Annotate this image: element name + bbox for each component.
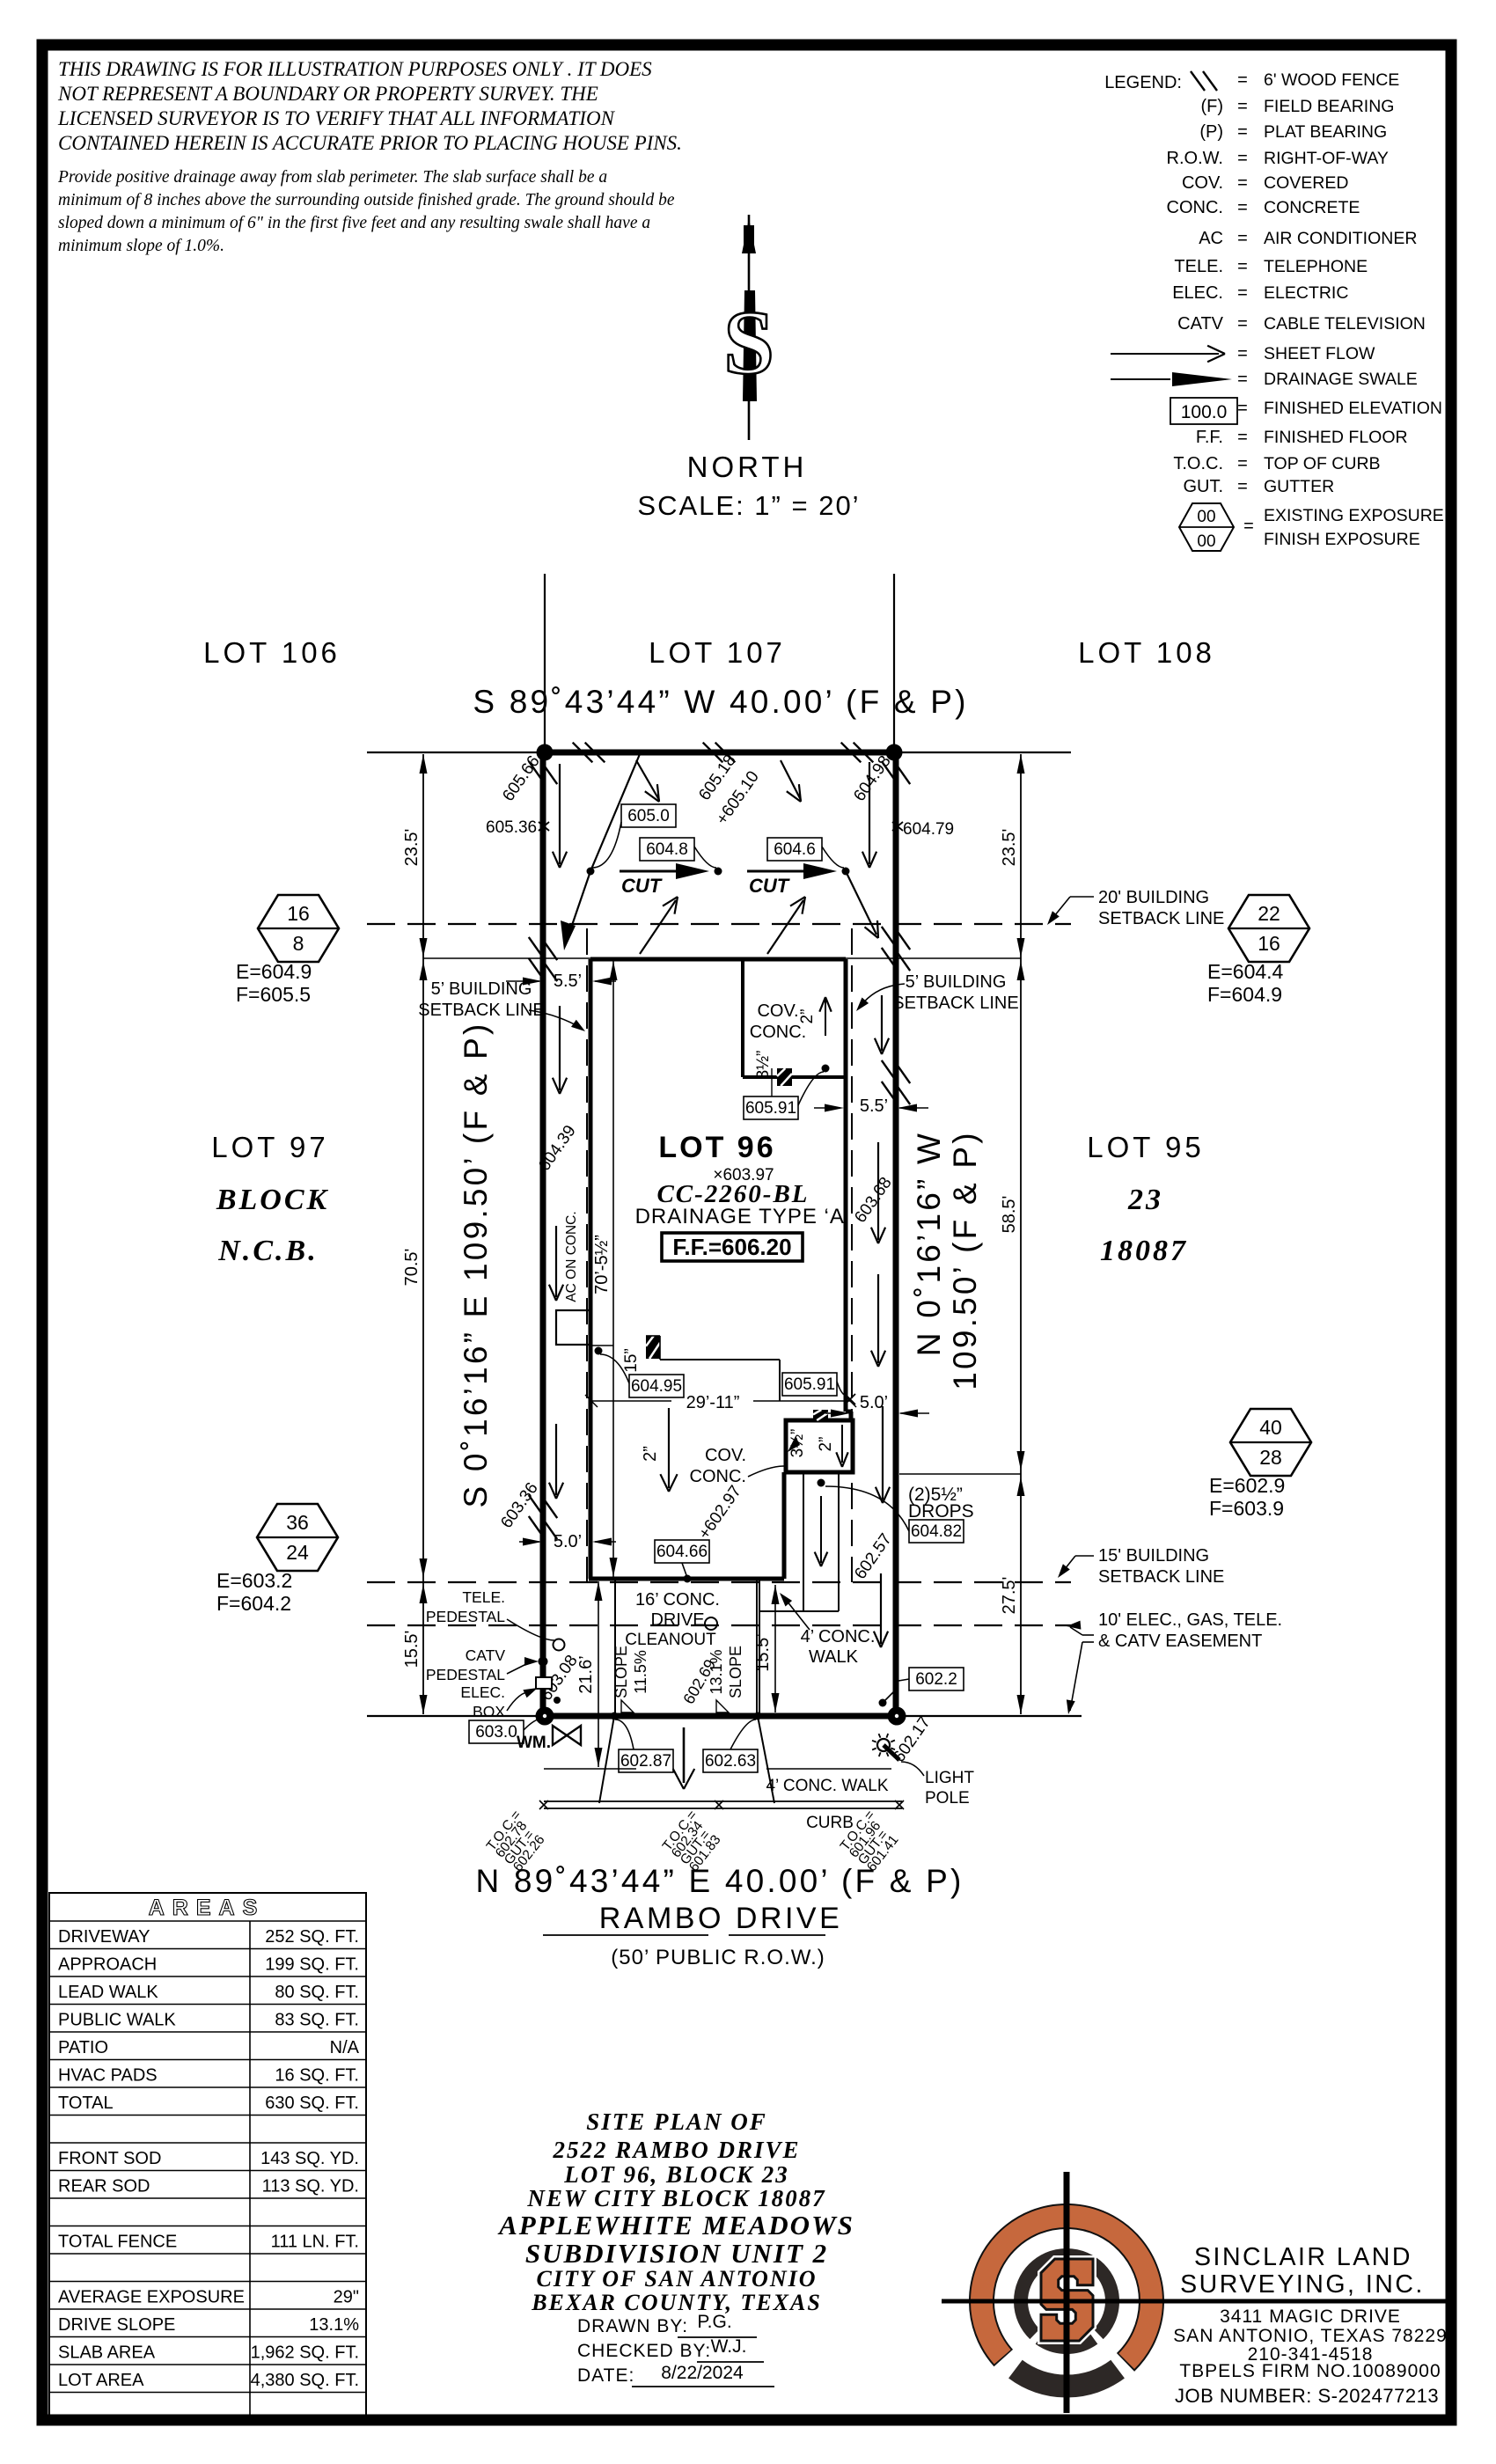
svg-text:BOX: BOX <box>473 1703 505 1720</box>
svg-text:RAMBO DRIVE: RAMBO DRIVE <box>599 1902 843 1935</box>
svg-text:CLEANOUT: CLEANOUT <box>625 1631 716 1649</box>
svg-text:E=604.4: E=604.4 <box>1207 960 1284 983</box>
svg-text:00: 00 <box>1197 508 1215 526</box>
svg-text:27.5': 27.5' <box>1000 1577 1019 1615</box>
svg-text:S: S <box>723 292 774 393</box>
svg-text:AVERAGE EXPOSURE: AVERAGE EXPOSURE <box>58 2288 245 2307</box>
svg-text:=: = <box>1243 517 1254 536</box>
svg-text:LEGEND:: LEGEND: <box>1104 73 1182 92</box>
svg-text:F.F.: F.F. <box>1196 428 1223 447</box>
svg-text:DROPS: DROPS <box>908 1501 974 1522</box>
svg-text:5’ BUILDING: 5’ BUILDING <box>906 972 1007 992</box>
svg-text:604.95: 604.95 <box>631 1377 682 1396</box>
svg-text:SLOPE: SLOPE <box>612 1646 630 1698</box>
svg-text:ELEC.: ELEC. <box>460 1683 505 1701</box>
svg-text:604.82: 604.82 <box>911 1522 962 1541</box>
svg-text:FIELD BEARING: FIELD BEARING <box>1264 97 1394 116</box>
svg-text:=: = <box>1237 344 1248 363</box>
svg-text:16 SQ. FT.: 16 SQ. FT. <box>275 2066 359 2086</box>
svg-text:LOT 97: LOT 97 <box>211 1131 328 1163</box>
svg-text:(50’ PUBLIC R.O.W.): (50’ PUBLIC R.O.W.) <box>611 1946 825 1969</box>
svg-text:COV.: COV. <box>1182 173 1223 193</box>
svg-text:3½”: 3½” <box>754 1051 773 1080</box>
svg-text:SLAB AREA: SLAB AREA <box>58 2343 156 2363</box>
svg-text:109.50’ (F & P): 109.50’ (F & P) <box>947 1130 983 1390</box>
svg-text:CONC.: CONC. <box>1167 198 1223 217</box>
svg-text:CONC.: CONC. <box>750 1023 806 1042</box>
svg-text:DRIVE SLOPE: DRIVE SLOPE <box>58 2315 175 2335</box>
svg-text:E=604.9: E=604.9 <box>236 960 312 983</box>
svg-text:EXISTING EXPOSURE: EXISTING EXPOSURE <box>1264 506 1444 525</box>
svg-text:ELECTRIC: ELECTRIC <box>1264 283 1348 303</box>
svg-text:15.5’: 15.5’ <box>753 1633 773 1671</box>
svg-text:Provide positive drainage away: Provide positive drainage away from slab… <box>57 168 607 187</box>
svg-text:AIR CONDITIONER: AIR CONDITIONER <box>1264 229 1417 248</box>
svg-text:604.8: 604.8 <box>646 840 688 859</box>
svg-text:APPROACH: APPROACH <box>58 1955 157 1975</box>
svg-text:RIGHT-OF-WAY: RIGHT-OF-WAY <box>1264 149 1389 168</box>
svg-text:LOT 96: LOT 96 <box>658 1131 775 1164</box>
svg-text:SITE PLAN OF: SITE PLAN OF <box>586 2108 767 2135</box>
svg-text:CUT: CUT <box>621 875 663 897</box>
svg-text:S 0˚16’16” E 109.50’ (F & P): S 0˚16’16” E 109.50’ (F & P) <box>458 1021 494 1507</box>
svg-text:minimum of 8 inches above the: minimum of 8 inches above the surroundin… <box>58 191 675 209</box>
svg-text:143 SQ. YD.: 143 SQ. YD. <box>260 2149 359 2168</box>
svg-text:SUBDIVISION UNIT 2: SUBDIVISION UNIT 2 <box>525 2238 828 2269</box>
svg-text:5.5’: 5.5’ <box>860 1096 888 1116</box>
svg-text:LOT 106: LOT 106 <box>203 636 341 669</box>
svg-text:29’-11”: 29’-11” <box>686 1393 740 1412</box>
svg-text:LOT 96, BLOCK 23: LOT 96, BLOCK 23 <box>563 2161 789 2188</box>
svg-text:8: 8 <box>293 932 304 955</box>
svg-text:LICENSED SURVEYOR IS TO VERIFY: LICENSED SURVEYOR IS TO VERIFY THAT ALL … <box>57 107 616 129</box>
svg-text:JOB NUMBER: S-202477213: JOB NUMBER: S-202477213 <box>1175 2385 1439 2407</box>
svg-text:FINISH EXPOSURE: FINISH EXPOSURE <box>1264 530 1420 549</box>
svg-text:11.5%: 11.5% <box>632 1650 649 1694</box>
svg-text:DRAWN BY:: DRAWN BY: <box>577 2316 688 2336</box>
svg-text:=: = <box>1237 283 1248 303</box>
svg-text:GUT.: GUT. <box>1183 477 1223 496</box>
svg-text:=: = <box>1237 198 1248 217</box>
svg-text:=: = <box>1237 314 1248 334</box>
svg-text:SAN ANTONIO, TEXAS 78229: SAN ANTONIO, TEXAS 78229 <box>1173 2326 1448 2346</box>
svg-text:70.5': 70.5' <box>402 1249 422 1287</box>
svg-text:2522 RAMBO DRIVE: 2522 RAMBO DRIVE <box>552 2137 800 2163</box>
svg-text:LOT 108: LOT 108 <box>1078 636 1215 669</box>
svg-text:4’ CONC.: 4’ CONC. <box>801 1627 876 1646</box>
svg-text:24: 24 <box>286 1541 309 1564</box>
svg-text:N/A: N/A <box>330 2038 360 2057</box>
svg-text:23.5': 23.5' <box>402 829 422 867</box>
svg-text:630 SQ. FT.: 630 SQ. FT. <box>265 2094 359 2113</box>
svg-text:F=603.9: F=603.9 <box>1209 1497 1284 1520</box>
svg-text:199 SQ. FT.: 199 SQ. FT. <box>265 1955 359 1975</box>
svg-text:SLOPE: SLOPE <box>727 1646 744 1698</box>
svg-text:605.36: 605.36 <box>486 818 537 837</box>
svg-text:PATIO: PATIO <box>58 2038 108 2057</box>
svg-text:HVAC PADS: HVAC PADS <box>58 2066 158 2086</box>
svg-text:22: 22 <box>1258 902 1280 925</box>
svg-text:CONTAINED HEREIN IS ACCURATE P: CONTAINED HEREIN IS ACCURATE PRIOR TO PL… <box>58 132 682 154</box>
svg-text:20' BUILDING: 20' BUILDING <box>1098 888 1209 907</box>
svg-text:F=604.2: F=604.2 <box>216 1592 291 1615</box>
svg-text:SINCLAIR LAND: SINCLAIR LAND <box>1194 2243 1412 2271</box>
svg-text:10' ELEC., GAS, TELE.: 10' ELEC., GAS, TELE. <box>1098 1610 1282 1630</box>
svg-text:minimum slope of 1.0%.: minimum slope of 1.0%. <box>58 237 224 255</box>
svg-text:83 SQ. FT.: 83 SQ. FT. <box>275 2011 359 2030</box>
svg-text:=: = <box>1237 428 1248 447</box>
svg-text:(P): (P) <box>1199 122 1223 142</box>
svg-text:16: 16 <box>287 902 310 925</box>
svg-text:PUBLIC WALK: PUBLIC WALK <box>58 2011 176 2030</box>
svg-text:70’-5½”: 70’-5½” <box>592 1235 612 1294</box>
svg-text:CHECKED BY:: CHECKED BY: <box>577 2341 711 2361</box>
svg-text:& CATV EASEMENT: & CATV EASEMENT <box>1098 1632 1262 1651</box>
svg-text:=: = <box>1237 173 1248 193</box>
svg-text:TELE.: TELE. <box>1174 257 1223 276</box>
svg-text:603.0: 603.0 <box>475 1723 517 1742</box>
svg-text:16’ CONC.: 16’ CONC. <box>635 1590 720 1610</box>
svg-text:=: = <box>1237 454 1248 473</box>
svg-text:=: = <box>1237 399 1248 418</box>
svg-text:F=604.9: F=604.9 <box>1207 983 1282 1006</box>
svg-text:36: 36 <box>286 1511 309 1534</box>
svg-text:THIS DRAWING IS FOR ILLUSTRATI: THIS DRAWING IS FOR ILLUSTRATION PURPOSE… <box>58 58 652 80</box>
svg-text:602.87: 602.87 <box>620 1752 671 1771</box>
svg-text:LOT 95: LOT 95 <box>1087 1131 1204 1163</box>
svg-text:113 SQ. YD.: 113 SQ. YD. <box>262 2177 359 2196</box>
svg-text:=: = <box>1237 149 1248 168</box>
svg-text:PEDESTAL: PEDESTAL <box>426 1666 505 1683</box>
svg-text:AC ON CONC.: AC ON CONC. <box>564 1211 579 1302</box>
svg-text:LOT AREA: LOT AREA <box>58 2371 144 2390</box>
svg-text:DRIVEWAY: DRIVEWAY <box>58 1927 150 1947</box>
svg-text:DRAINAGE SWALE: DRAINAGE SWALE <box>1264 370 1418 389</box>
svg-text:13.1%: 13.1% <box>309 2315 359 2335</box>
svg-text:252 SQ. FT.: 252 SQ. FT. <box>265 1927 359 1947</box>
svg-text:AC: AC <box>1199 229 1223 248</box>
svg-text:E=603.2: E=603.2 <box>216 1569 292 1592</box>
svg-text:REAR SOD: REAR SOD <box>58 2177 150 2196</box>
svg-text:18087: 18087 <box>1100 1235 1188 1267</box>
svg-text:F=605.5: F=605.5 <box>236 983 311 1006</box>
svg-text:CATV: CATV <box>466 1646 506 1664</box>
svg-text:=: = <box>1237 70 1248 90</box>
svg-text:FRONT SOD: FRONT SOD <box>58 2149 161 2168</box>
svg-text:16: 16 <box>1258 932 1280 955</box>
svg-text:28: 28 <box>1259 1446 1282 1469</box>
svg-text:15.5': 15.5' <box>402 1631 422 1668</box>
svg-text:WALK: WALK <box>809 1647 859 1667</box>
svg-text:2”: 2” <box>641 1446 660 1462</box>
svg-text:P.G.: P.G. <box>697 2312 731 2332</box>
svg-text:2”: 2” <box>798 1009 817 1024</box>
svg-text:APPLEWHITE MEADOWS: APPLEWHITE MEADOWS <box>497 2210 854 2240</box>
svg-text:CURB: CURB <box>806 1814 854 1832</box>
svg-text:605.91: 605.91 <box>745 1099 796 1118</box>
svg-text:100.0: 100.0 <box>1181 402 1228 422</box>
svg-text:LOT 107: LOT 107 <box>649 636 786 669</box>
svg-text:E=602.9: E=602.9 <box>1209 1474 1285 1497</box>
svg-text:LIGHT: LIGHT <box>925 1769 974 1787</box>
svg-text:15”: 15” <box>622 1348 641 1372</box>
svg-text:23.5': 23.5' <box>1000 829 1019 867</box>
svg-text:5’ BUILDING: 5’ BUILDING <box>431 979 532 999</box>
svg-text:N 0˚16’16” W: N 0˚16’16” W <box>911 1131 947 1356</box>
svg-text:LEAD WALK: LEAD WALK <box>58 1983 158 2002</box>
svg-text:TOP OF CURB: TOP OF CURB <box>1264 454 1381 473</box>
svg-text:SETBACK LINE: SETBACK LINE <box>1098 909 1224 928</box>
svg-text:SCALE: 1” = 20’: SCALE: 1” = 20’ <box>637 490 860 521</box>
svg-text:5.0’: 5.0’ <box>554 1532 582 1551</box>
svg-text:F.F.=606.20: F.F.=606.20 <box>672 1234 791 1260</box>
svg-text:POLE: POLE <box>925 1789 970 1808</box>
svg-text:=: = <box>1237 122 1248 142</box>
svg-text:AREAS: AREAS <box>149 1896 266 1920</box>
svg-text:58.5': 58.5' <box>1000 1196 1019 1234</box>
svg-text:40: 40 <box>1259 1416 1282 1439</box>
svg-text:5.5’: 5.5’ <box>554 972 582 991</box>
svg-text:PEDESTAL: PEDESTAL <box>426 1608 505 1625</box>
svg-text:NOT REPRESENT A BOUNDARY OR PR: NOT REPRESENT A BOUNDARY OR PROPERTY SUR… <box>57 83 598 105</box>
svg-text:111 LN. FT.: 111 LN. FT. <box>271 2233 359 2252</box>
svg-text:604.66: 604.66 <box>656 1543 708 1561</box>
svg-text:CATV: CATV <box>1177 314 1224 334</box>
svg-text:=: = <box>1237 257 1248 276</box>
svg-text:NORTH: NORTH <box>687 451 808 483</box>
svg-text:605.91: 605.91 <box>784 1375 835 1394</box>
svg-text:3411 MAGIC DRIVE: 3411 MAGIC DRIVE <box>1220 2306 1401 2327</box>
svg-text:DRAINAGE TYPE ‘A’: DRAINAGE TYPE ‘A’ <box>635 1205 849 1228</box>
svg-text:CABLE TELEVISION: CABLE TELEVISION <box>1264 314 1426 334</box>
svg-text:CUT: CUT <box>749 875 790 897</box>
svg-text:SETBACK LINE: SETBACK LINE <box>892 994 1018 1013</box>
svg-text:602.63: 602.63 <box>705 1752 756 1771</box>
svg-text:PLAT BEARING: PLAT BEARING <box>1264 122 1387 142</box>
svg-text:8/22/2024: 8/22/2024 <box>661 2363 744 2383</box>
svg-text:CITY OF SAN ANTONIO: CITY OF SAN ANTONIO <box>537 2266 818 2292</box>
svg-text:N 89˚43’44” E 40.00’ (F & P): N 89˚43’44” E 40.00’ (F & P) <box>475 1863 964 1899</box>
svg-text:COVERED: COVERED <box>1264 173 1348 193</box>
svg-text:BLOCK: BLOCK <box>216 1184 329 1216</box>
svg-text:=: = <box>1237 229 1248 248</box>
svg-text:SURVEYING, INC.: SURVEYING, INC. <box>1180 2270 1425 2299</box>
svg-text:FINISHED FLOOR: FINISHED FLOOR <box>1264 428 1408 447</box>
svg-text:CONCRETE: CONCRETE <box>1264 198 1360 217</box>
svg-text:FINISHED ELEVATION: FINISHED ELEVATION <box>1264 399 1442 418</box>
svg-text:604.6: 604.6 <box>774 840 816 859</box>
svg-text:TOTAL FENCE: TOTAL FENCE <box>58 2233 177 2252</box>
svg-text:4,380 SQ. FT.: 4,380 SQ. FT. <box>251 2371 359 2390</box>
svg-text:COV.: COV. <box>757 1001 798 1021</box>
svg-text:R.O.W.: R.O.W. <box>1167 149 1223 168</box>
svg-text:DRIVE: DRIVE <box>650 1610 704 1630</box>
svg-text:21.6’: 21.6’ <box>576 1655 596 1693</box>
svg-text:15' BUILDING: 15' BUILDING <box>1098 1546 1209 1566</box>
svg-text:GUTTER: GUTTER <box>1264 477 1334 496</box>
svg-text:605.0: 605.0 <box>627 807 670 825</box>
svg-text:80 SQ. FT.: 80 SQ. FT. <box>275 1983 359 2002</box>
svg-text:=: = <box>1237 97 1248 116</box>
svg-text:SETBACK LINE: SETBACK LINE <box>1098 1567 1224 1587</box>
svg-text:WM.: WM. <box>517 1734 551 1752</box>
svg-text:602.2: 602.2 <box>915 1670 957 1689</box>
svg-text:1,962 SQ. FT.: 1,962 SQ. FT. <box>251 2343 359 2363</box>
svg-text:SHEET FLOW: SHEET FLOW <box>1264 344 1375 363</box>
svg-text:W.J.: W.J. <box>711 2336 747 2357</box>
svg-text:TELEPHONE: TELEPHONE <box>1264 257 1368 276</box>
svg-text:(F): (F) <box>1200 97 1223 116</box>
svg-text:29": 29" <box>334 2288 359 2307</box>
svg-text:COV.: COV. <box>705 1446 746 1465</box>
svg-text:N.C.B.: N.C.B. <box>217 1235 318 1267</box>
svg-text:SETBACK LINE: SETBACK LINE <box>418 1001 544 1020</box>
svg-text:TOTAL: TOTAL <box>58 2094 114 2113</box>
svg-text:=: = <box>1237 370 1248 389</box>
svg-text:T.O.C.: T.O.C. <box>1173 454 1223 473</box>
svg-text:5.0’: 5.0’ <box>860 1393 888 1412</box>
svg-text:BEXAR COUNTY, TEXAS: BEXAR COUNTY, TEXAS <box>531 2290 822 2315</box>
svg-text:23: 23 <box>1127 1184 1163 1216</box>
svg-text:ELEC.: ELEC. <box>1172 283 1223 303</box>
svg-text:00: 00 <box>1197 532 1215 551</box>
svg-text:CONC.: CONC. <box>690 1467 746 1486</box>
svg-text:TBPELS FIRM NO.10089000: TBPELS FIRM NO.10089000 <box>1179 2361 1441 2381</box>
svg-text:sloped down a minimum of 6" in: sloped down a minimum of 6" in the first… <box>58 214 650 232</box>
svg-text:6' WOOD FENCE: 6' WOOD FENCE <box>1264 70 1399 90</box>
svg-text:2”: 2” <box>817 1437 835 1452</box>
svg-text:4’ CONC. WALK: 4’ CONC. WALK <box>766 1777 888 1795</box>
svg-text:DATE:: DATE: <box>577 2365 634 2386</box>
svg-text:604.79: 604.79 <box>903 820 954 839</box>
svg-text:=: = <box>1237 477 1248 496</box>
svg-text:NEW CITY BLOCK 18087: NEW CITY BLOCK 18087 <box>526 2185 825 2211</box>
svg-text:TELE.: TELE. <box>462 1588 505 1606</box>
